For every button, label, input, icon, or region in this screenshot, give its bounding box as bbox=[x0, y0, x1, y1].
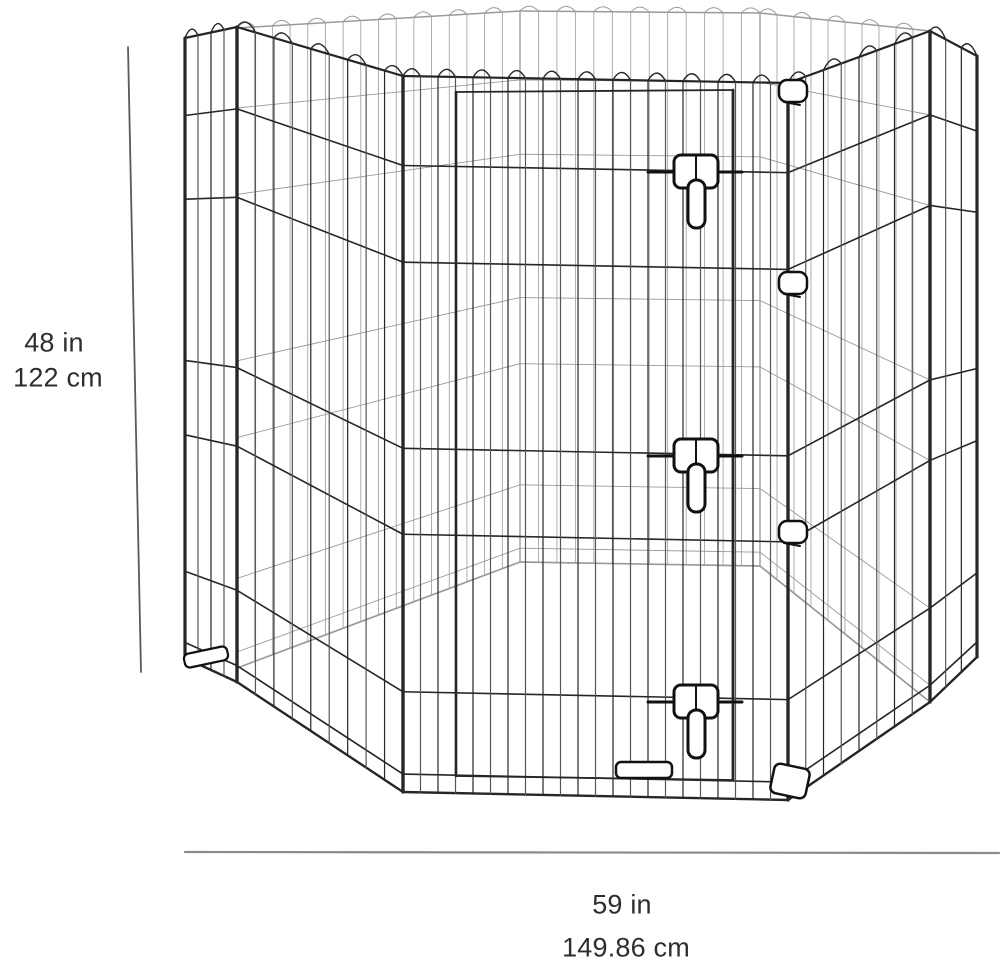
height-centimeters-label: 122 cm bbox=[13, 365, 103, 392]
pen-back-panels bbox=[237, 6, 930, 702]
width-inches-label: 59 in bbox=[592, 892, 652, 919]
product-dimension-figure: 48 in 122 cm 59 in 149.86 cm bbox=[0, 0, 1000, 964]
height-dimension-line bbox=[128, 47, 141, 672]
width-dimension-line bbox=[185, 852, 999, 853]
playpen-illustration bbox=[0, 0, 1000, 964]
door-latches bbox=[648, 155, 742, 758]
height-inches-label: 48 in bbox=[24, 330, 84, 357]
pen-front-panels bbox=[185, 22, 977, 800]
width-centimeters-label: 149.86 cm bbox=[562, 935, 690, 962]
door-hinge-clips bbox=[779, 80, 807, 546]
